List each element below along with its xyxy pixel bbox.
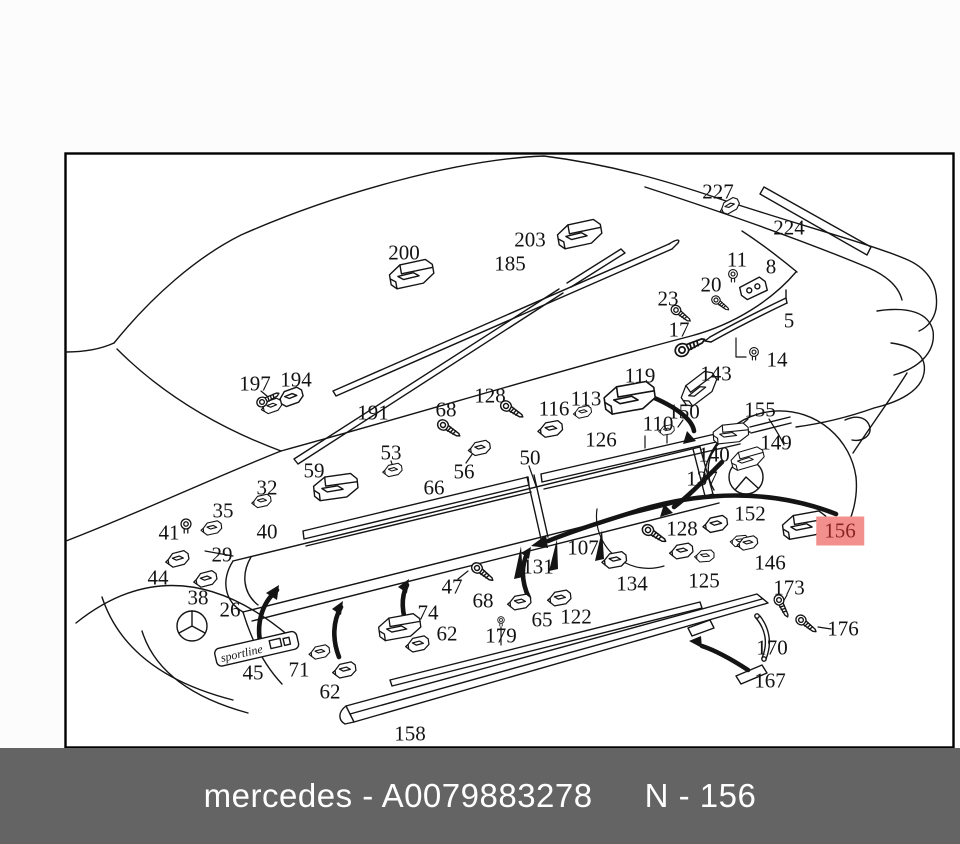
part-label-44: 44 bbox=[148, 568, 169, 589]
part-label-167: 167 bbox=[754, 671, 786, 692]
part-label-14: 14 bbox=[767, 350, 788, 371]
part-label-134: 134 bbox=[616, 574, 648, 595]
parts-catalog-page: sportline bbox=[0, 0, 960, 844]
part-label-155: 155 bbox=[744, 400, 776, 421]
part-label-179: 179 bbox=[485, 626, 517, 647]
footer-bar: mercedes - A0079883278 N - 156 bbox=[0, 748, 960, 844]
part-label-65: 65 bbox=[532, 610, 553, 631]
part-label-126: 126 bbox=[585, 430, 617, 451]
footer-part-number: mercedes - A0079883278 bbox=[204, 777, 593, 815]
part-label-122: 122 bbox=[560, 607, 592, 628]
part-label-41: 41 bbox=[159, 523, 180, 544]
part-label-113: 113 bbox=[571, 389, 602, 410]
part-label-170: 170 bbox=[756, 638, 788, 659]
part-label-149: 149 bbox=[760, 433, 792, 454]
part-label-128: 128 bbox=[474, 386, 506, 407]
part-label-194: 194 bbox=[280, 370, 312, 391]
part-label-156[interactable]: 156 bbox=[816, 517, 864, 546]
part-label-74: 74 bbox=[418, 603, 439, 624]
part-label-131: 131 bbox=[522, 557, 554, 578]
footer-diagram-ref: N - 156 bbox=[645, 777, 757, 815]
part-label-197: 197 bbox=[239, 374, 271, 395]
part-label-119: 119 bbox=[625, 366, 656, 387]
part-label-53: 53 bbox=[381, 443, 402, 464]
part-label-11: 11 bbox=[727, 250, 747, 271]
part-label-200: 200 bbox=[388, 243, 420, 264]
part-label-32: 32 bbox=[257, 478, 278, 499]
part-label-158: 158 bbox=[394, 724, 426, 745]
part-label-23: 23 bbox=[658, 289, 679, 310]
part-label-8: 8 bbox=[766, 257, 777, 278]
part-label-35: 35 bbox=[213, 501, 234, 522]
part-label-62: 62 bbox=[320, 682, 341, 703]
part-label-116: 116 bbox=[539, 399, 570, 420]
part-label-20: 20 bbox=[701, 275, 722, 296]
part-label-29: 29 bbox=[212, 545, 233, 566]
part-label-38: 38 bbox=[188, 588, 209, 609]
part-label-203: 203 bbox=[514, 230, 546, 251]
part-label-185: 185 bbox=[494, 254, 526, 275]
part-label-56: 56 bbox=[454, 462, 475, 483]
part-label-152: 152 bbox=[734, 504, 766, 525]
part-label-17: 17 bbox=[669, 320, 690, 341]
part-label-66: 66 bbox=[424, 478, 445, 499]
part-label-26: 26 bbox=[220, 600, 241, 621]
part-label-191: 191 bbox=[357, 403, 389, 424]
part-label-59: 59 bbox=[304, 461, 325, 482]
part-label-40: 40 bbox=[257, 522, 278, 543]
part-label-47: 47 bbox=[442, 577, 463, 598]
part-label-62: 62 bbox=[437, 624, 458, 645]
part-label-227: 227 bbox=[702, 182, 734, 203]
part-label-137: 137 bbox=[686, 469, 718, 490]
part-label-110: 110 bbox=[643, 414, 674, 435]
part-label-71: 71 bbox=[289, 660, 310, 681]
part-label-128: 128 bbox=[666, 519, 698, 540]
part-label-140: 140 bbox=[698, 445, 730, 466]
part-label-45: 45 bbox=[243, 663, 264, 684]
part-label-125: 125 bbox=[688, 571, 720, 592]
part-label-224: 224 bbox=[773, 218, 805, 239]
part-labels-layer: 2002031852272241182023175141971941916812… bbox=[0, 0, 960, 748]
part-label-176: 176 bbox=[827, 619, 859, 640]
part-label-68: 68 bbox=[436, 400, 457, 421]
part-label-173: 173 bbox=[773, 578, 805, 599]
part-label-68: 68 bbox=[473, 591, 494, 612]
part-label-107: 107 bbox=[567, 538, 599, 559]
part-label-50: 50 bbox=[520, 448, 541, 469]
part-label-5: 5 bbox=[784, 311, 795, 332]
part-label-143: 143 bbox=[700, 364, 732, 385]
part-label-146: 146 bbox=[754, 553, 786, 574]
